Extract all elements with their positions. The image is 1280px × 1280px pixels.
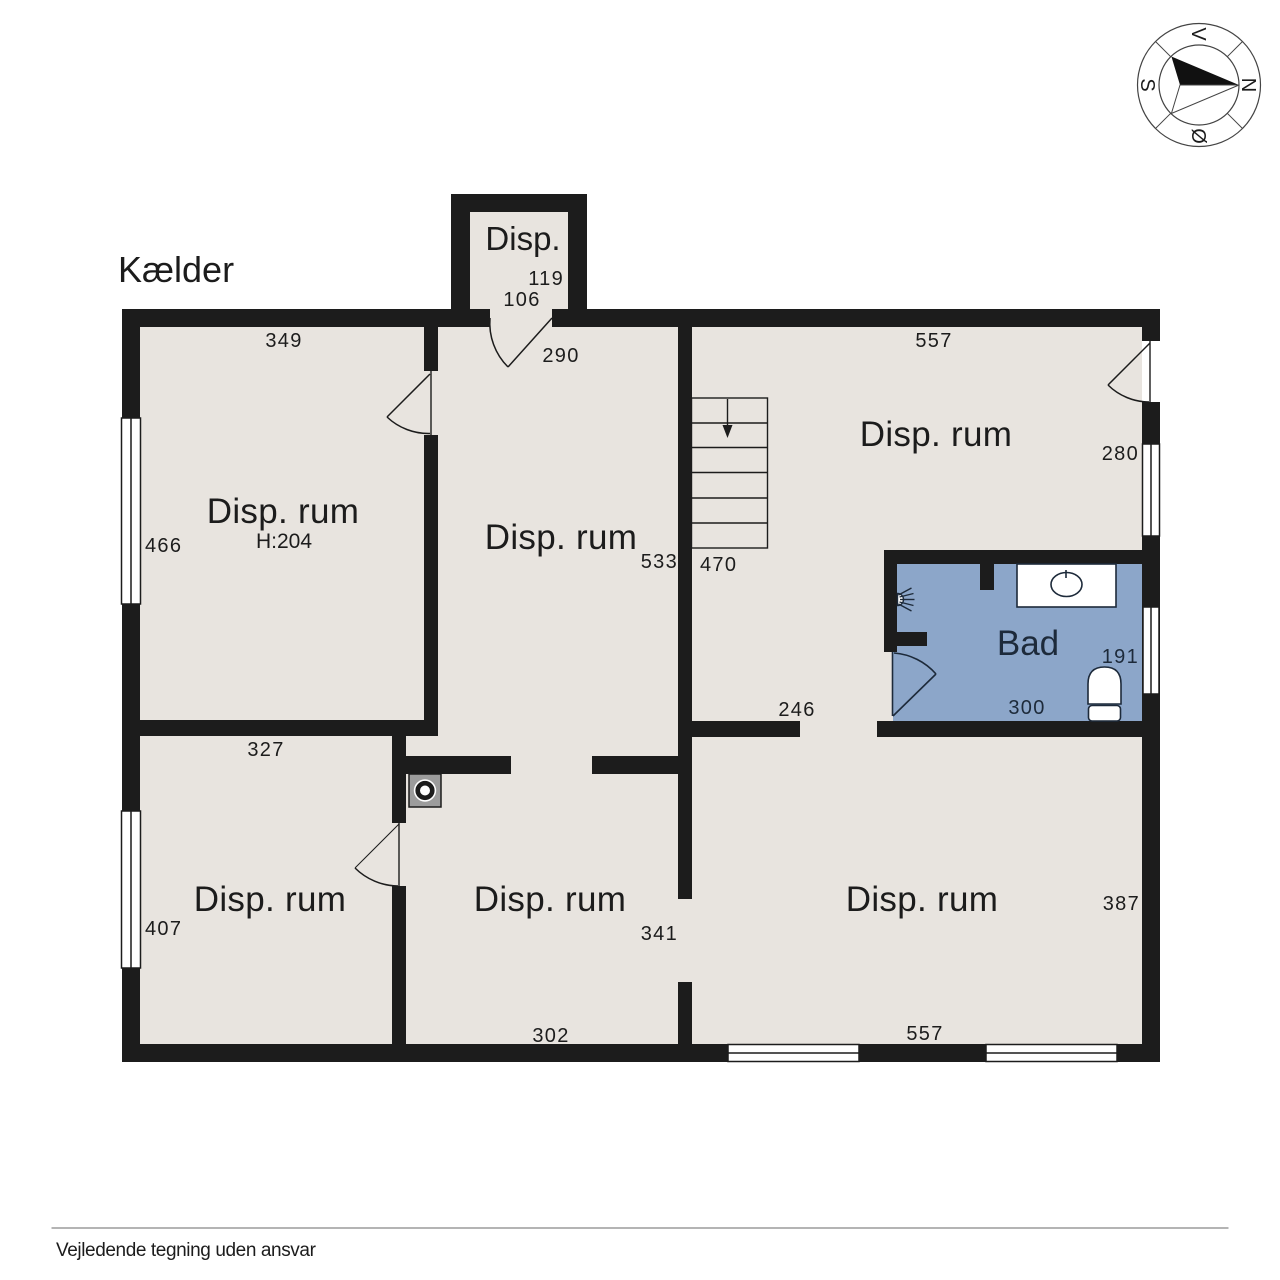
svg-text:387: 387 xyxy=(1103,893,1140,915)
svg-text:V: V xyxy=(1187,27,1209,41)
svg-text:Kælder: Kælder xyxy=(118,249,234,290)
svg-text:327: 327 xyxy=(247,739,284,761)
svg-text:Disp. rum: Disp. rum xyxy=(474,880,626,919)
svg-text:349: 349 xyxy=(265,330,302,352)
svg-text:557: 557 xyxy=(906,1023,943,1045)
svg-text:280: 280 xyxy=(1102,443,1139,465)
svg-text:H:204: H:204 xyxy=(256,530,312,553)
svg-text:Disp. rum: Disp. rum xyxy=(194,880,346,919)
svg-text:557: 557 xyxy=(915,330,952,352)
svg-text:Disp. rum: Disp. rum xyxy=(860,415,1012,454)
svg-text:290: 290 xyxy=(542,345,579,367)
svg-text:119: 119 xyxy=(528,268,564,290)
svg-text:533: 533 xyxy=(641,551,678,573)
svg-text:N: N xyxy=(1237,78,1259,92)
svg-text:Disp. rum: Disp. rum xyxy=(846,880,998,919)
svg-text:302: 302 xyxy=(532,1025,569,1047)
svg-text:Disp.: Disp. xyxy=(485,220,560,257)
svg-text:Disp. rum: Disp. rum xyxy=(485,518,637,557)
svg-text:470: 470 xyxy=(700,554,737,576)
svg-text:246: 246 xyxy=(778,699,815,721)
svg-text:Bad: Bad xyxy=(997,624,1059,663)
svg-text:S: S xyxy=(1136,78,1158,91)
svg-text:106: 106 xyxy=(503,289,540,311)
svg-text:191: 191 xyxy=(1102,646,1139,668)
svg-text:466: 466 xyxy=(145,535,182,557)
svg-text:300: 300 xyxy=(1008,697,1045,719)
svg-text:Ø: Ø xyxy=(1187,128,1209,144)
svg-text:341: 341 xyxy=(641,923,678,945)
svg-text:Vejledende tegning uden ansvar: Vejledende tegning uden ansvar xyxy=(56,1240,317,1261)
svg-text:407: 407 xyxy=(145,918,182,940)
svg-text:Disp. rum: Disp. rum xyxy=(207,492,359,531)
